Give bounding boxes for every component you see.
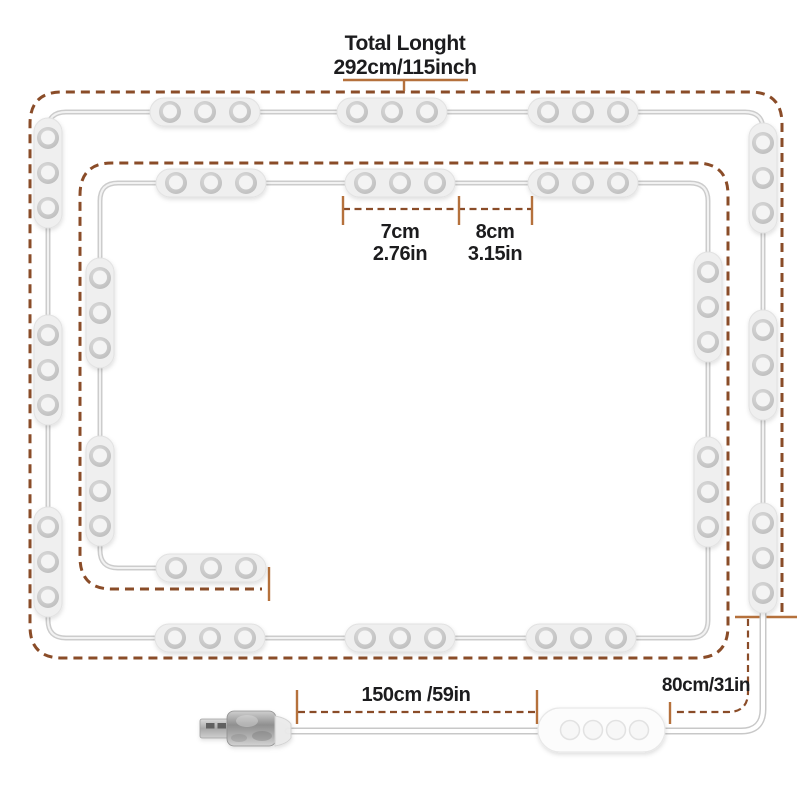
led-module bbox=[150, 98, 260, 126]
led-face bbox=[385, 105, 399, 119]
led-module bbox=[155, 624, 265, 652]
led-face bbox=[93, 271, 107, 285]
controller-cable-length-annotation: 80cm/31in bbox=[662, 619, 750, 724]
led-face bbox=[756, 136, 770, 150]
led-face bbox=[756, 323, 770, 337]
led-face bbox=[203, 631, 217, 645]
led-module bbox=[694, 252, 722, 362]
led-face bbox=[204, 561, 218, 575]
led-face bbox=[701, 265, 715, 279]
led-face bbox=[204, 176, 218, 190]
led-face bbox=[756, 586, 770, 600]
led-face bbox=[168, 631, 182, 645]
led-face bbox=[93, 484, 107, 498]
led-module bbox=[86, 436, 114, 546]
led-module bbox=[345, 169, 455, 197]
led-face bbox=[239, 561, 253, 575]
led-module bbox=[694, 437, 722, 547]
led-face bbox=[609, 631, 623, 645]
usb-cable-length-annotation: 150cm /59in bbox=[297, 684, 537, 724]
led-face bbox=[358, 176, 372, 190]
led-face bbox=[701, 450, 715, 464]
led-face bbox=[238, 631, 252, 645]
led-module bbox=[34, 507, 62, 617]
led-module bbox=[528, 169, 638, 197]
led-module bbox=[156, 554, 266, 582]
led-face bbox=[539, 631, 553, 645]
led-face bbox=[41, 555, 55, 569]
led-face bbox=[41, 520, 55, 534]
led-face bbox=[574, 631, 588, 645]
led-module bbox=[156, 169, 266, 197]
usb-plug-icon bbox=[200, 711, 291, 746]
led-module bbox=[86, 258, 114, 368]
controller-cable-length-value: 80cm/31in bbox=[662, 675, 750, 696]
usb-contact-hole bbox=[218, 723, 227, 729]
led-module bbox=[34, 315, 62, 425]
led-module bbox=[337, 98, 447, 126]
led-face bbox=[41, 131, 55, 145]
led-face bbox=[41, 398, 55, 412]
led-face bbox=[93, 519, 107, 533]
led-face bbox=[41, 363, 55, 377]
led-module bbox=[749, 310, 777, 420]
led-strip-dimension-diagram: Total Longht 292cm/115inch 7cm 2.76in 8c… bbox=[0, 0, 800, 800]
led-face bbox=[169, 176, 183, 190]
led-module bbox=[749, 123, 777, 233]
led-face bbox=[701, 300, 715, 314]
led-face bbox=[756, 393, 770, 407]
led-face bbox=[41, 201, 55, 215]
led-module bbox=[528, 98, 638, 126]
led-face bbox=[701, 335, 715, 349]
led-face bbox=[41, 328, 55, 342]
led-face bbox=[756, 516, 770, 530]
led-face bbox=[611, 105, 625, 119]
usb-cable-length-value: 150cm /59in bbox=[361, 684, 470, 706]
led-face bbox=[756, 358, 770, 372]
total-length-annotation: Total Longht 292cm/115inch bbox=[333, 32, 476, 91]
led-face bbox=[163, 105, 177, 119]
led-module bbox=[526, 624, 636, 652]
led-face bbox=[756, 171, 770, 185]
led-face bbox=[428, 631, 442, 645]
led-face bbox=[393, 631, 407, 645]
module-length-in: 2.76in bbox=[373, 243, 427, 265]
module-gap-in: 3.15in bbox=[468, 243, 522, 265]
led-face bbox=[541, 105, 555, 119]
module-length-cm: 7cm bbox=[381, 221, 420, 243]
controller-button bbox=[561, 721, 580, 740]
led-face bbox=[701, 520, 715, 534]
led-module bbox=[345, 624, 455, 652]
led-face bbox=[41, 590, 55, 604]
diagram-canvas: Total Longht 292cm/115inch 7cm 2.76in 8c… bbox=[0, 0, 800, 800]
led-face bbox=[93, 449, 107, 463]
led-face bbox=[420, 105, 434, 119]
led-module bbox=[34, 118, 62, 228]
controller-button bbox=[607, 721, 626, 740]
module-gap-cm: 8cm bbox=[476, 221, 515, 243]
led-module bbox=[749, 503, 777, 613]
led-face bbox=[428, 176, 442, 190]
total-length-title: Total Longht bbox=[345, 32, 466, 55]
usb-contact-hole bbox=[206, 723, 215, 729]
led-face bbox=[350, 105, 364, 119]
led-face bbox=[239, 176, 253, 190]
total-length-value: 292cm/115inch bbox=[333, 56, 476, 79]
led-face bbox=[169, 561, 183, 575]
led-face bbox=[41, 166, 55, 180]
led-face bbox=[198, 105, 212, 119]
led-face bbox=[541, 176, 555, 190]
led-face bbox=[756, 551, 770, 565]
led-face bbox=[701, 485, 715, 499]
led-face bbox=[358, 631, 372, 645]
led-face bbox=[233, 105, 247, 119]
led-face bbox=[576, 105, 590, 119]
controller-button bbox=[584, 721, 603, 740]
led-face bbox=[611, 176, 625, 190]
module-spacing-annotation: 7cm 2.76in 8cm 3.15in bbox=[343, 196, 532, 265]
led-face bbox=[756, 206, 770, 220]
led-face bbox=[93, 341, 107, 355]
led-face bbox=[93, 306, 107, 320]
controller-button bbox=[630, 721, 649, 740]
led-face bbox=[393, 176, 407, 190]
led-face bbox=[576, 176, 590, 190]
controller-icon bbox=[538, 708, 665, 752]
